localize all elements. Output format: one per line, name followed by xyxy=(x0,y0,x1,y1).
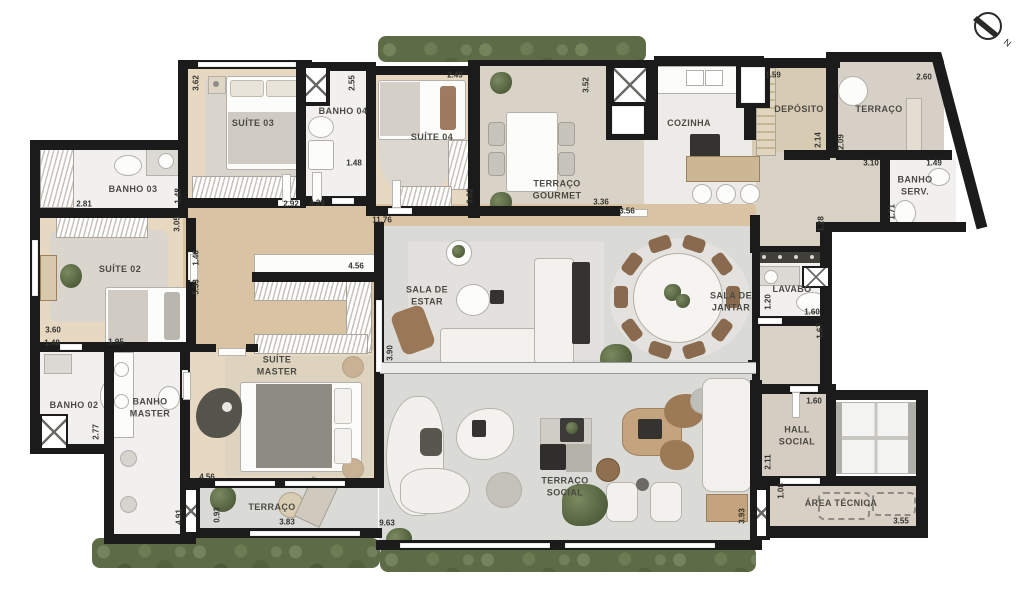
dimension-label: 0.93 xyxy=(213,507,222,523)
sofa-throw xyxy=(420,428,442,456)
cooktop xyxy=(690,134,720,158)
dimension-label: 1.48 xyxy=(174,188,183,204)
sink-lavabo xyxy=(764,270,778,284)
sink-master-1 xyxy=(114,362,129,377)
door-gap-banho-02 xyxy=(60,344,82,350)
hedge-top xyxy=(378,36,646,62)
sofa-l-vertical xyxy=(534,258,574,364)
window-suite-master-a xyxy=(215,481,275,486)
bed-suite-02-blanket xyxy=(108,290,148,342)
dimension-label: 3.36 xyxy=(593,198,609,207)
room-label-banho-03: BANHO 03 xyxy=(109,184,158,196)
bench-terraco-superior xyxy=(906,98,922,154)
wall xyxy=(30,140,40,218)
window-suite-02 xyxy=(32,240,38,296)
dimension-label: 2.49 xyxy=(447,71,463,80)
console-knob xyxy=(762,255,766,259)
shower-banho-03 xyxy=(40,148,74,208)
room-label-area-tecnica: ÁREA TÉCNICA xyxy=(805,498,877,510)
table-terraco-superior xyxy=(838,76,868,106)
window-terraco-social-a xyxy=(400,543,550,548)
compass-north-label: N xyxy=(1002,37,1013,49)
table-frame xyxy=(472,420,486,437)
lamp-icon xyxy=(213,81,219,87)
stool xyxy=(740,184,760,204)
dimension-label: 4.29 xyxy=(309,199,325,208)
shaft-banho-04 xyxy=(304,66,328,104)
chair xyxy=(558,122,575,146)
wall xyxy=(826,390,836,482)
dimension-label: 1.46 xyxy=(192,250,201,266)
toilet-banho-04 xyxy=(308,116,334,138)
armchair-social-2 xyxy=(650,482,682,522)
window-suite-master-b xyxy=(285,481,345,486)
wall xyxy=(178,60,188,208)
dimension-label: 2.55 xyxy=(348,75,357,91)
wall xyxy=(784,150,830,160)
wall xyxy=(916,390,928,490)
dimension-label: 3.05 xyxy=(173,216,182,232)
room-label-suite-02: SUÍTE 02 xyxy=(99,264,141,276)
dimension-label: 1.60 xyxy=(804,308,820,317)
side-table-dark xyxy=(490,290,504,304)
brown-pouf-b xyxy=(660,440,694,470)
door-gap-lavabo xyxy=(758,318,782,324)
dimension-label: 1.60 xyxy=(806,397,822,406)
closet-master-bottom xyxy=(254,334,368,354)
room-label-cozinha: COZINHA xyxy=(667,118,711,130)
shaft-cozinha-b xyxy=(612,106,644,134)
dimension-label: 2.92 xyxy=(283,200,299,209)
dimension-label: 2.81 xyxy=(76,200,92,209)
dimension-label: 1.67 xyxy=(816,323,825,339)
dimension-label: 2.14 xyxy=(814,132,823,148)
wall xyxy=(826,390,926,400)
wall xyxy=(756,526,928,538)
dimension-label: 4.56 xyxy=(199,473,215,482)
dimension-label: 1.08 xyxy=(777,483,786,499)
dimension-label: 1.59 xyxy=(765,71,781,80)
room-label-banho-master: BANHO MASTER xyxy=(130,396,170,419)
dimension-label: 3.10 xyxy=(863,159,879,168)
desk-suite-02 xyxy=(40,255,57,301)
dimension-label: 3.90 xyxy=(386,345,395,361)
window-hall xyxy=(376,300,382,372)
bed-master-pillow-2 xyxy=(334,428,352,464)
shower-head-1 xyxy=(120,450,137,467)
room-label-terraco-social: TERRAÇO SOCIAL xyxy=(541,475,588,498)
room-label-suite-03: SUÍTE 03 xyxy=(232,118,274,130)
console-knob xyxy=(778,255,782,259)
door-gap-area-tecnica xyxy=(780,478,820,484)
vanity-banho-02 xyxy=(44,354,72,374)
room-label-terraco-inferior: TERRAÇO xyxy=(248,502,295,514)
long-sofa-social xyxy=(702,378,752,492)
shower-head-2 xyxy=(120,496,137,513)
room-label-terraco-superior: TERRAÇO xyxy=(855,104,902,116)
wall xyxy=(366,206,478,216)
equipment-area-tecnica-2 xyxy=(872,492,916,516)
grill-mid xyxy=(566,444,592,472)
wall xyxy=(476,206,622,216)
dimension-label: 3.62 xyxy=(192,75,201,91)
room-label-banho-serv: BANHO SERV. xyxy=(898,174,933,197)
shaft-cozinha xyxy=(612,66,648,104)
wall xyxy=(30,342,40,454)
glass-door-sala xyxy=(380,362,756,374)
dimension-label: 2.77 xyxy=(92,424,101,440)
door-leaf-banho-04 xyxy=(312,172,322,202)
wall xyxy=(186,344,216,352)
floor-plan: N SUÍTE 03BANHO 04SUÍTE 04TERRAÇO GOURME… xyxy=(0,0,1024,593)
elevator-rail xyxy=(908,402,916,474)
bed-master-pillow-1 xyxy=(334,388,352,424)
dimension-label: 1.48 xyxy=(44,339,60,348)
sink-master-2 xyxy=(114,394,129,409)
kitchen-sink-2 xyxy=(705,70,723,86)
pouf-master-1 xyxy=(342,356,364,378)
toilet-banho-03 xyxy=(114,155,142,176)
room-label-banho-02: BANHO 02 xyxy=(50,400,99,412)
bed-master-blanket xyxy=(256,384,332,468)
side-table-lamp xyxy=(636,478,649,491)
room-label-banho-04: BANHO 04 xyxy=(319,106,368,118)
chair xyxy=(488,152,505,176)
wall xyxy=(752,246,832,252)
dimension-label: 4.56 xyxy=(348,262,364,271)
tv-console xyxy=(572,262,590,344)
dimension-label: 3.56 xyxy=(619,207,635,216)
desk-chair-suite-02 xyxy=(60,264,82,288)
door-leaf-suite-03 xyxy=(282,174,291,202)
dimension-label: 11.76 xyxy=(372,216,392,225)
dimension-label: 1.20 xyxy=(764,294,773,310)
wall xyxy=(252,272,380,282)
console-knob xyxy=(810,255,814,259)
dimension-label: 3.52 xyxy=(582,77,591,93)
shaft-terraco xyxy=(184,488,198,534)
room-label-suite-master: SUÍTE MASTER xyxy=(257,354,297,377)
room-label-terraco-gourmet: TERRAÇO GOURMET xyxy=(533,178,582,201)
sink-banho-03 xyxy=(158,153,174,169)
stool xyxy=(716,184,736,204)
grill-dark xyxy=(540,444,566,470)
bed-suite-02-pillow xyxy=(164,292,180,340)
dimension-label: 1.71 xyxy=(888,204,897,220)
room-label-sala-de-jantar: SALA DE JANTAR xyxy=(710,290,752,313)
dimension-label: 5.33 xyxy=(192,279,201,295)
door-leaf-suite-master xyxy=(218,348,246,356)
room-label-sala-de-estar: SALA DE ESTAR xyxy=(406,284,448,307)
dimension-label: 3.62 xyxy=(466,188,475,204)
wall xyxy=(30,140,188,150)
room-label-hall-social: HALL SOCIAL xyxy=(779,424,815,447)
pouf-brown xyxy=(596,458,620,482)
dimension-label: 2.11 xyxy=(764,454,773,469)
sink-banho-04 xyxy=(308,140,334,170)
shaft-hall-social xyxy=(755,488,768,538)
compass-icon: N xyxy=(973,13,1013,49)
console-knob xyxy=(794,255,798,259)
wall xyxy=(104,444,114,544)
dimension-label: 1.48 xyxy=(346,159,362,168)
dimension-label: 3.60 xyxy=(45,326,61,335)
door-gap-banho-04 xyxy=(332,198,354,204)
wall xyxy=(366,62,376,214)
window-terraco-social-b xyxy=(565,543,715,548)
dimension-label: 9.63 xyxy=(379,519,395,528)
wall xyxy=(916,476,928,532)
wall xyxy=(832,52,950,62)
closet-suite-02 xyxy=(56,216,148,238)
armchair-ball xyxy=(222,402,232,412)
wood-table-tray xyxy=(638,419,662,439)
dimension-label: 2.09 xyxy=(837,134,846,150)
bed-suite-04-blanket xyxy=(380,82,420,136)
wall xyxy=(104,348,114,448)
wall xyxy=(816,222,966,232)
dimension-label: 4.91 xyxy=(175,509,184,525)
stool xyxy=(692,184,712,204)
door-leaf-banho-master xyxy=(183,372,191,400)
door-gap-suite-04 xyxy=(388,208,412,214)
wall xyxy=(30,208,188,218)
dimension-label: 3.83 xyxy=(279,518,295,527)
dimension-label: 1.28 xyxy=(817,216,826,232)
armchair-social-1 xyxy=(606,482,638,522)
bed-suite-03-pillows2 xyxy=(266,80,300,97)
room-label-suite-04: SUÍTE 04 xyxy=(411,132,453,144)
dining-chair xyxy=(614,286,628,308)
bed-suite-03-pillows xyxy=(230,80,264,97)
shaft-cozinha-c xyxy=(741,67,765,103)
door-leaf-hall-social xyxy=(792,392,800,418)
room-label-deposito: DEPÓSITO xyxy=(774,104,824,116)
bed-suite-04-pillow xyxy=(440,86,456,130)
dimension-label: 3.93 xyxy=(738,508,747,524)
dimension-label: 1.95 xyxy=(108,338,124,347)
kitchen-sink xyxy=(686,70,704,86)
dimension-label: 3.55 xyxy=(893,517,909,526)
elevator xyxy=(840,402,912,474)
chair xyxy=(558,152,575,176)
shaft-banho-02 xyxy=(40,414,68,450)
chair xyxy=(488,122,505,146)
coffee-table xyxy=(456,284,490,316)
window-suite-03 xyxy=(198,62,296,67)
window-terraco-inferior xyxy=(250,531,360,536)
door-leaf-suite-04 xyxy=(392,180,401,208)
dimension-label: 2.60 xyxy=(916,73,932,82)
room-label-lavabo: LAVABO xyxy=(772,284,811,296)
pouf-gray xyxy=(486,472,522,508)
kitchen-island xyxy=(686,156,760,182)
dimension-label: 1.49 xyxy=(926,159,942,168)
wall xyxy=(246,344,258,352)
